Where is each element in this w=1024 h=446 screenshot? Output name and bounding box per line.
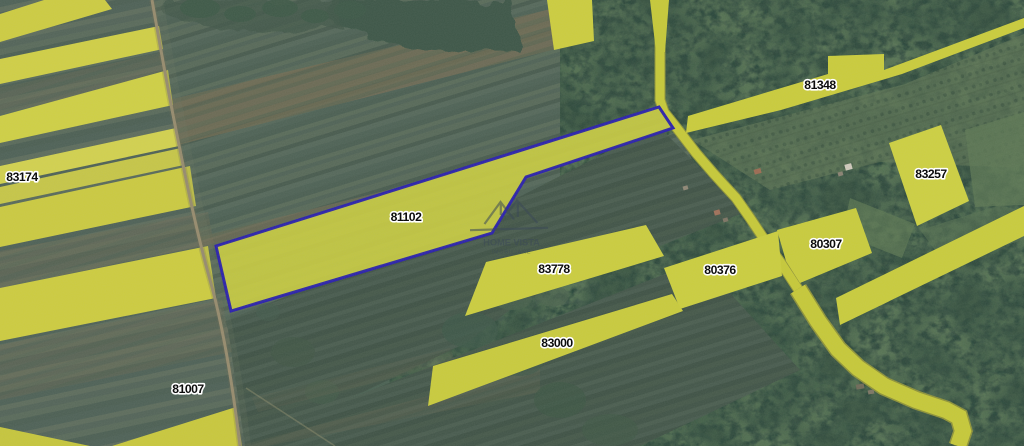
svg-text:83257: 83257 — [915, 167, 947, 181]
svg-text:81007: 81007 — [172, 382, 204, 396]
svg-text:IMOBILIARE: IMOBILIARE — [492, 250, 532, 256]
svg-text:81102: 81102 — [391, 210, 422, 224]
svg-text:83778: 83778 — [538, 262, 570, 276]
svg-text:83174: 83174 — [6, 170, 38, 184]
svg-text:80307: 80307 — [810, 237, 842, 251]
svg-text:HOME VISTA: HOME VISTA — [483, 237, 540, 248]
svg-text:80376: 80376 — [704, 263, 736, 277]
svg-text:83000: 83000 — [541, 336, 573, 350]
svg-text:81348: 81348 — [804, 78, 836, 92]
